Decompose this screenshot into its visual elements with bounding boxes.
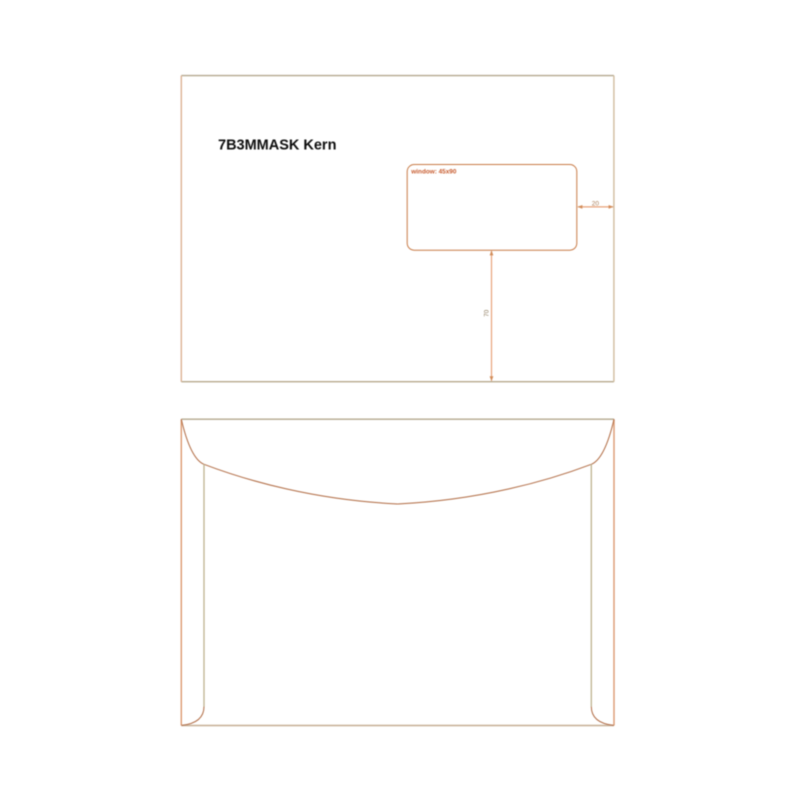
svg-text:7B3MMASK Kern: 7B3MMASK Kern (218, 138, 336, 154)
svg-text:window: 45x90: window: 45x90 (410, 169, 457, 176)
svg-text:70: 70 (483, 309, 490, 317)
svg-text:20: 20 (592, 201, 600, 208)
